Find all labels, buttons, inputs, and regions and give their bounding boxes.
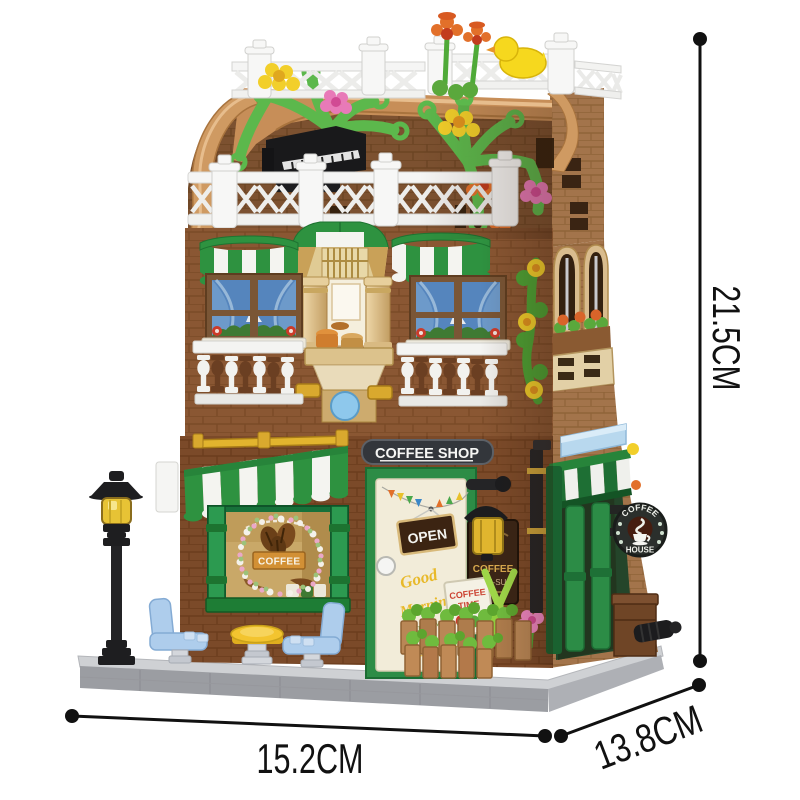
svg-text:COFFEE SHOP: COFFEE SHOP [375,445,479,462]
svg-text:HOUSE: HOUSE [626,546,655,555]
svg-text:15.2CM: 15.2CM [257,735,364,782]
svg-text:13.8CM: 13.8CM [588,697,708,778]
svg-text:21.5CM: 21.5CM [704,286,747,391]
svg-text:COFFEE: COFFEE [258,557,300,568]
